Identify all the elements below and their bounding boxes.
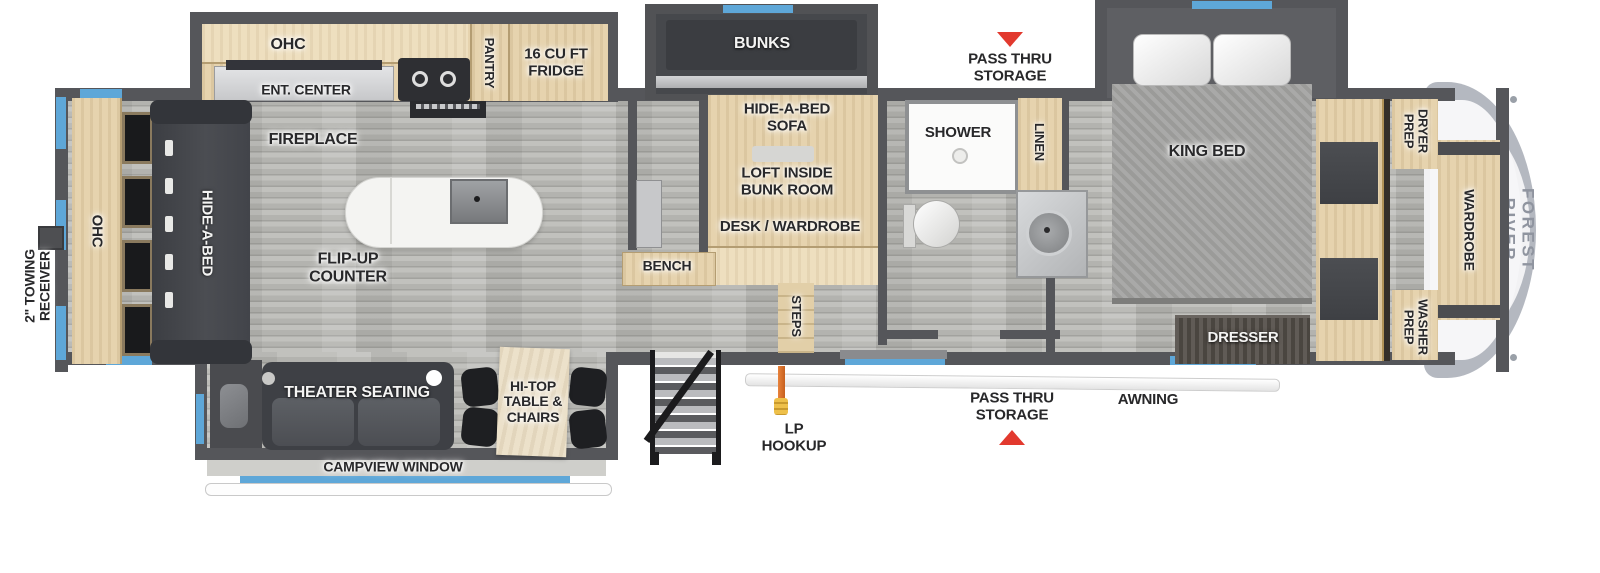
theater-seating-label: THEATER SEATING (284, 384, 430, 402)
king-bed-label: KING BED (1169, 143, 1246, 161)
sofa-stitch-2 (165, 178, 173, 194)
hitop-chair-left-2 (460, 406, 500, 448)
cooktop-burner-right (440, 71, 456, 87)
lp-connector (774, 398, 788, 415)
closet-floor (1316, 99, 1382, 361)
hitop-label: HI-TOP TABLE & CHAIRS (504, 379, 562, 425)
end-table-tray (220, 384, 248, 428)
bunkroom-left-wall (699, 95, 708, 253)
pass-thru-top-label: PASS THRU STORAGE (968, 52, 1052, 85)
tv-unit (226, 60, 382, 70)
lp-hookup-label: LP HOOKUP (762, 422, 827, 455)
pass-thru-top-arrow (997, 32, 1023, 47)
awning-label: AWNING (1118, 392, 1178, 409)
bath-left-wall (878, 95, 887, 345)
closet-cabinet-top (1320, 142, 1378, 204)
sofa-stitch-1 (165, 140, 173, 156)
loft-label: LOFT INSIDE BUNK ROOM (741, 166, 833, 199)
desk-wardrobe-label: DESK / WARDROBE (720, 219, 860, 236)
hitop-chair-left-1 (460, 366, 500, 408)
closet-cabinet-bottom (1320, 258, 1378, 320)
steps-label: STEPS (789, 295, 803, 337)
towing-receiver-icon (38, 226, 64, 250)
wardrobe-label: WARDROBE (1461, 189, 1476, 271)
king-pillow-left (1133, 34, 1211, 86)
fireplace-label: FIREPLACE (269, 131, 358, 149)
towing-receiver-label: 2" TOWING RECEIVER (23, 249, 54, 323)
rear-shelf-1 (122, 112, 153, 164)
shower (905, 100, 1019, 194)
lp-hose (778, 366, 785, 402)
kitchen-ohc-label: OHC (271, 36, 306, 54)
hitop-chair-right-2 (568, 408, 608, 450)
sofa-stitch-4 (165, 254, 173, 270)
slide-skirt (205, 483, 612, 496)
cooktop (398, 58, 470, 101)
vanity-faucet (1044, 227, 1050, 233)
king-mattress (1112, 84, 1312, 304)
sofa-stitch-3 (165, 216, 173, 232)
vanity-basin (1026, 210, 1072, 256)
theater-seat-left (272, 398, 354, 446)
bunk-hide-a-bed-label: HIDE-A-BED SOFA (744, 102, 830, 135)
pass-thru-bottom-label: PASS THRU STORAGE (970, 391, 1054, 424)
bath-bottom-wall-left (878, 330, 938, 339)
hitop-chair-right-1 (568, 366, 608, 408)
wardrobe-recess-bottom (1438, 305, 1500, 318)
shower-drain (952, 148, 968, 164)
theater-seat-right (358, 398, 440, 446)
rear-shelf-2 (122, 176, 153, 228)
dresser-label: DRESSER (1207, 330, 1278, 347)
cooktop-burner-left (412, 71, 428, 87)
rear-sofa-arm-top (150, 100, 252, 124)
rear-ohc-label: OHC (88, 215, 105, 248)
bunks-window (723, 5, 793, 13)
rear-shelf-4 (122, 304, 153, 356)
pocket-door (636, 180, 662, 248)
linen-label: LINEN (1032, 123, 1046, 161)
dryer-prep-label: DRYER PREP (1401, 109, 1430, 153)
island-flip-seam (390, 178, 392, 244)
cap-screw-bottom (1510, 354, 1517, 361)
bunk-sofa-cushion (752, 146, 814, 162)
entry-step-well (840, 350, 947, 359)
steps-foot-left (650, 452, 659, 465)
fridge-label: 16 CU FT FRIDGE (524, 47, 587, 80)
shower-label: SHOWER (925, 125, 991, 142)
pantry-label: PANTRY (482, 38, 496, 89)
bench-label: BENCH (643, 258, 692, 273)
entry-steps-rail-left (650, 350, 655, 462)
bunkroom-lower-platform (708, 246, 878, 285)
wardrobe-recess-top (1438, 142, 1500, 155)
rear-shelf-3 (122, 240, 153, 292)
entry-steps-rail-right (716, 350, 721, 462)
cap-screw-top (1510, 96, 1517, 103)
washer-prep-label: WASHER PREP (1401, 299, 1430, 355)
ent-center-label: ENT. CENTER (261, 82, 351, 97)
bunks-lower-band (656, 76, 867, 88)
rear-sofa-arm-bottom (150, 340, 252, 364)
entry-steps-treads (655, 358, 716, 454)
toilet-bowl (913, 200, 960, 248)
theater-slide-window-left (196, 394, 204, 444)
island-faucet (474, 196, 480, 202)
rear-window-top (56, 97, 66, 149)
theater-cupholder-left (262, 372, 275, 385)
campview-window-glass (240, 476, 570, 483)
flip-up-counter-label: FLIP-UP COUNTER (309, 250, 387, 285)
kitchen-island (345, 177, 543, 248)
king-window (1192, 1, 1272, 9)
bath-bed-wall-lower (1046, 270, 1055, 358)
floorplan: FOREST RIVER 2" TOWING RECEIVER OHC ENT.… (0, 0, 1600, 573)
bunks-label: BUNKS (734, 35, 790, 53)
rear-window-bottom (56, 306, 66, 360)
steps-foot-right (712, 452, 721, 465)
fireplace-vent (416, 104, 480, 109)
campview-window-label: CAMPVIEW WINDOW (323, 459, 462, 474)
closet-slide-door (1382, 99, 1390, 361)
sofa-stitch-5 (165, 292, 173, 308)
pass-thru-bottom-arrow (999, 430, 1025, 445)
rear-hide-a-bed-label: HIDE-A-BED (198, 190, 215, 276)
king-pillow-right (1213, 34, 1291, 86)
island-sink (450, 179, 508, 224)
top-wall-window-left (80, 89, 122, 98)
